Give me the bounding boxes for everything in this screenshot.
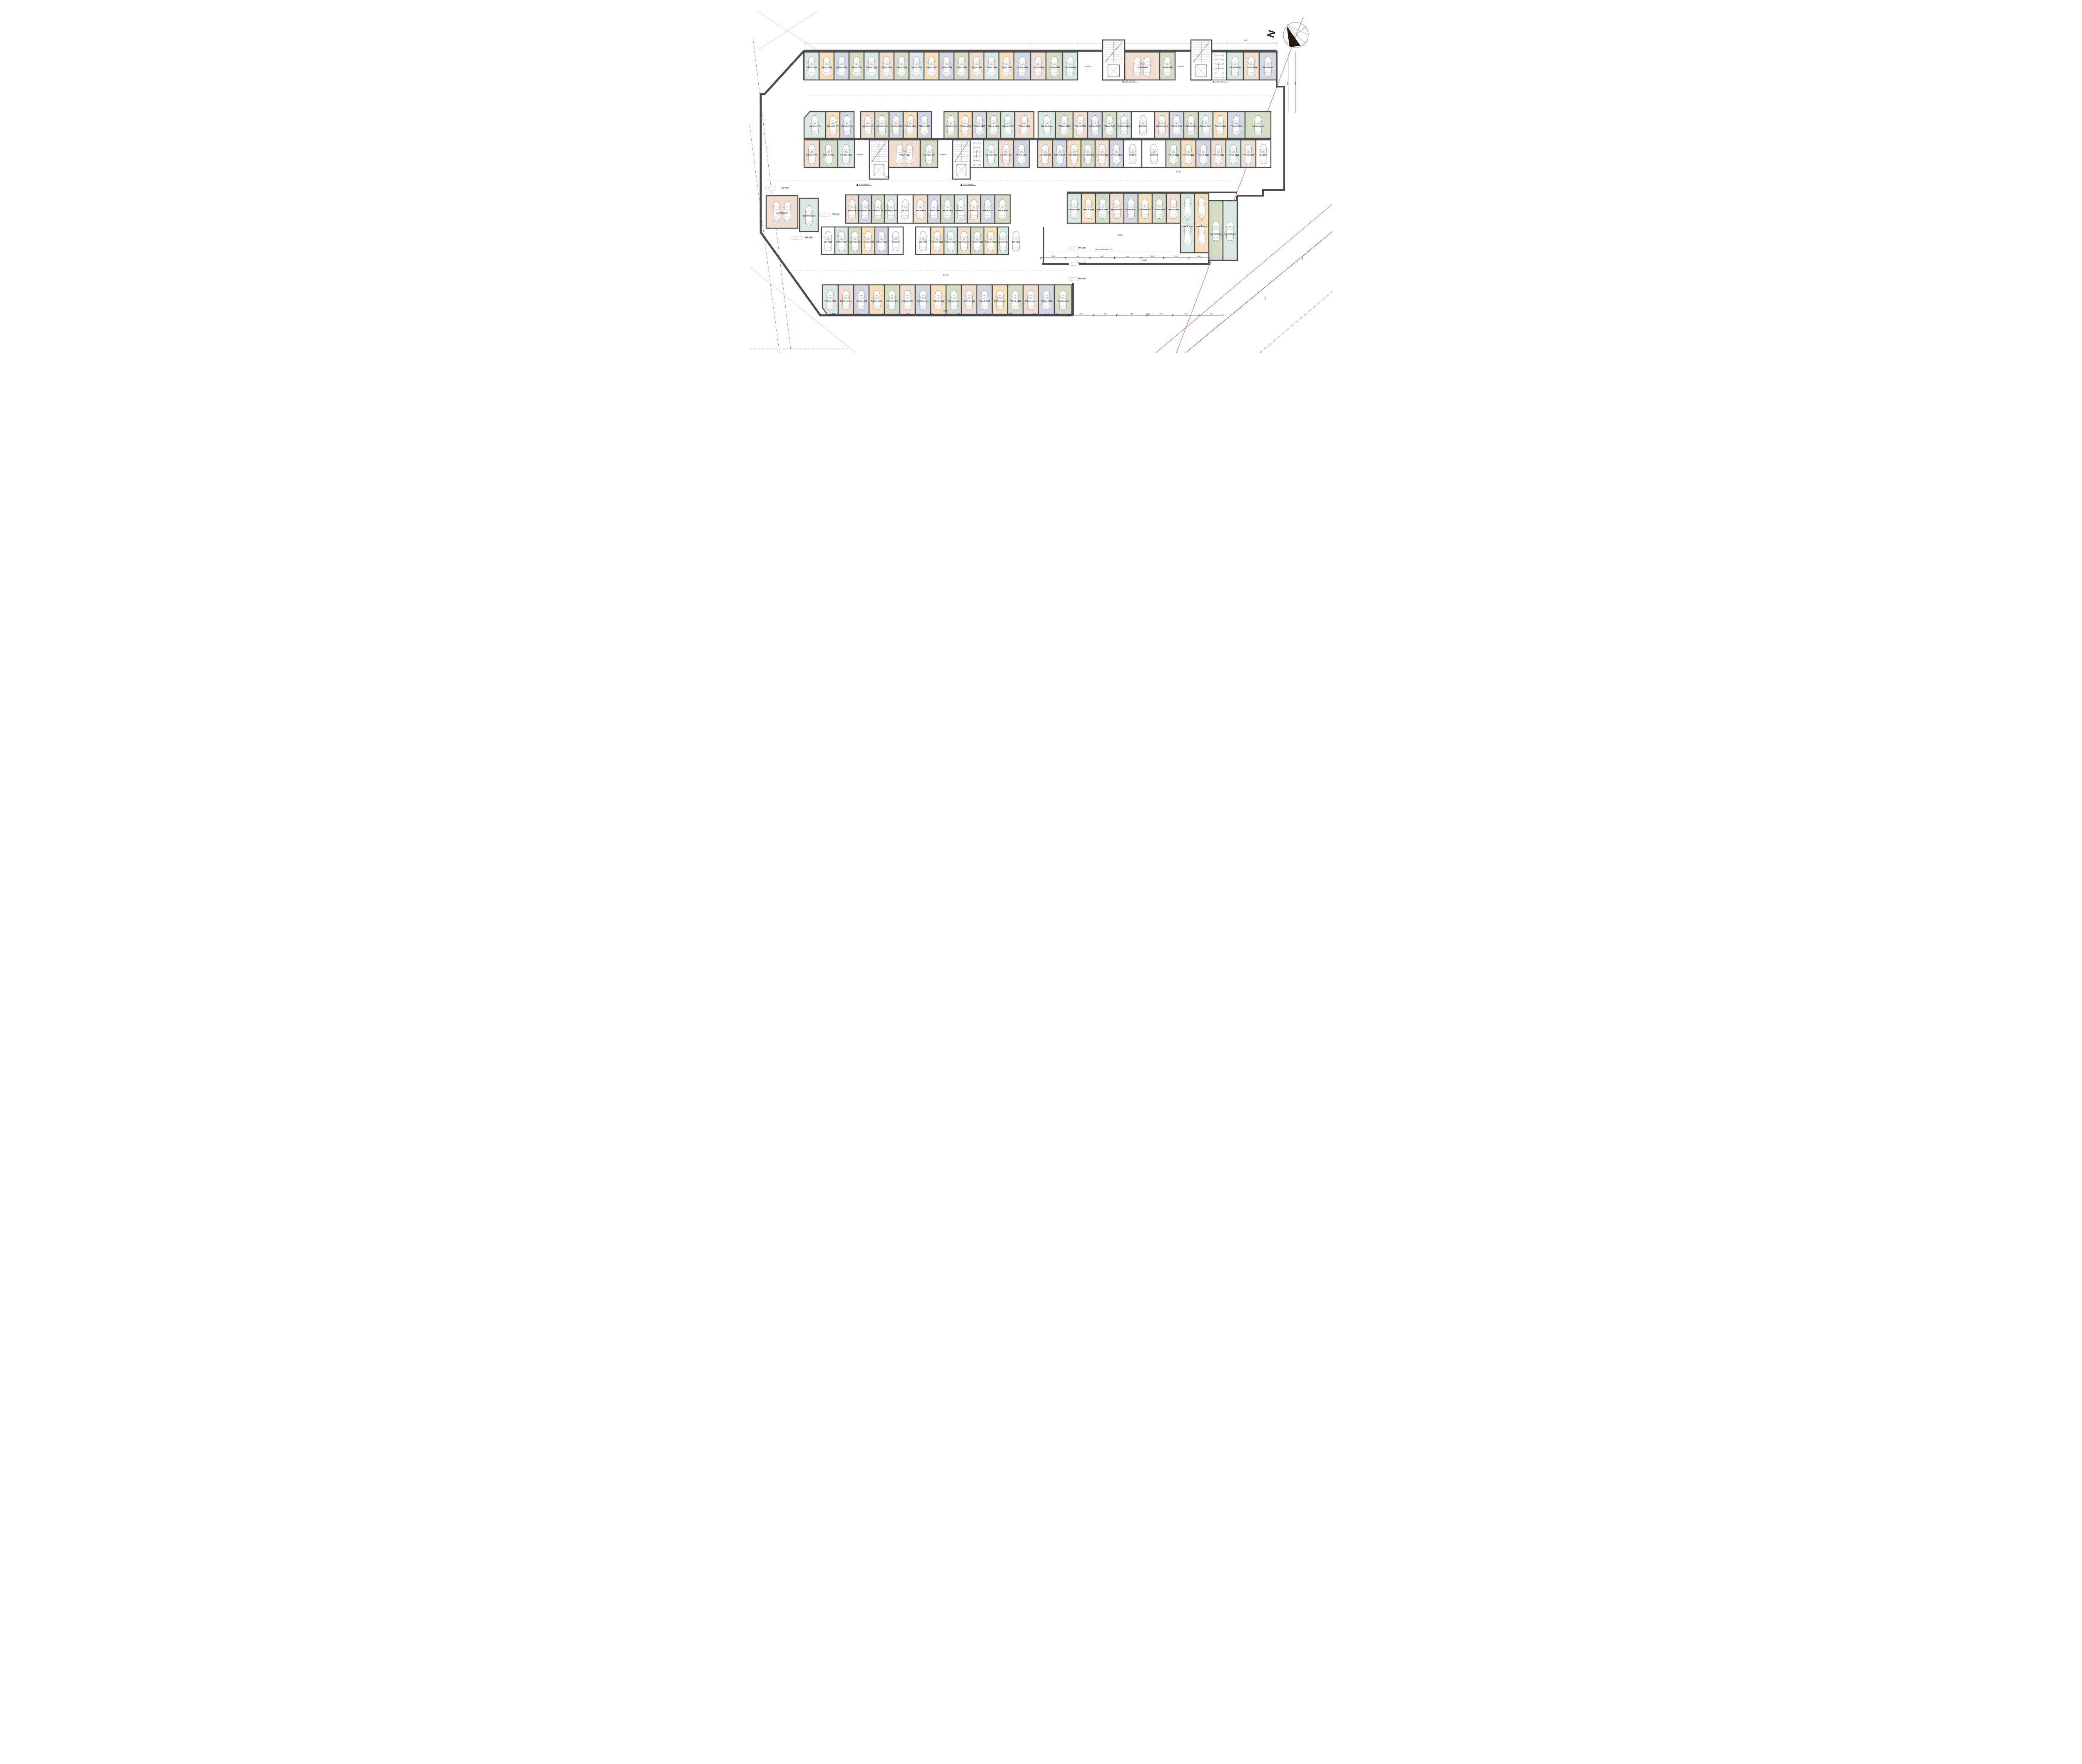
garage-stall: 300ГАРАЖ Б505: [1053, 140, 1067, 167]
svg-text:310: 310: [1172, 205, 1175, 207]
dimension-text-blue: 305: [1033, 313, 1036, 315]
garage-stall: 292ГАРАЖ А505: [846, 195, 859, 223]
svg-text:375: 375: [1142, 122, 1144, 124]
stall-label: ГАРАЖ А603: [849, 241, 861, 243]
ramp-label: рампа за автомобили 12%: [1095, 249, 1113, 250]
garage-stall: 227ГАРАЖ А621: [997, 227, 1009, 254]
stall-label: ГАРАЖ Б421: [1136, 66, 1148, 68]
stall-label: ГАРАЖ А519: [923, 154, 935, 156]
garage-stall: 300ГАРАЖ А720: [969, 52, 984, 80]
svg-text:315: 315: [1087, 205, 1090, 207]
svg-text:300: 300: [1073, 151, 1075, 153]
garage-stall: 300ГАРАЖ А604: [835, 227, 848, 254]
stall-label: ПМ А503: [782, 187, 789, 189]
stall-label: ГАРАЖ Б517: [1243, 154, 1254, 156]
garage-stall: 300ГАРАЖ А719: [954, 52, 969, 80]
bike-parking: велосипеди: [970, 140, 984, 167]
stair-core: [1103, 40, 1125, 80]
svg-text:308: 308: [867, 122, 869, 124]
stall-label: ГАРАЖ А515: [997, 209, 1009, 212]
garage-stall: 300ГАРАЖ А703: [889, 112, 903, 138]
garage-stall: 300ГАРАЖ А722: [999, 52, 1014, 80]
stall-label: ГАРАЖ А602: [862, 241, 874, 243]
svg-text:300: 300: [915, 63, 918, 65]
svg-text:294: 294: [1186, 219, 1189, 220]
stall-label: ГАРАЖ А708: [809, 125, 821, 127]
stall-label: ГАРАЖ А701: [919, 125, 930, 127]
svg-text:762: 762: [903, 151, 906, 153]
svg-text:291: 291: [933, 207, 936, 208]
stall-label: ГАРАЖ А513: [968, 209, 980, 212]
stall-label: ГАРАЖ А720: [971, 66, 982, 68]
garage-stall: 300ГАРАЖ А613: [946, 285, 961, 314]
garage-stall: 300ГАРАЖ А609: [884, 285, 900, 314]
stall-label: ГАРАЖ А724: [1019, 125, 1030, 127]
garage-stall: 300ГАРАЖ А622: [984, 227, 997, 254]
svg-text:310: 310: [1045, 297, 1048, 299]
stall-label: ГАРАЖ А512: [955, 209, 967, 212]
garage-stall: 300ГАРАЖ А728: [958, 112, 972, 138]
garage-stall: ГАРАЖ А504: [799, 198, 818, 232]
stall-label: ПМ А605: [1012, 241, 1020, 243]
garage-stall: 292ГАРАЖ А512: [954, 195, 967, 223]
svg-text:343: 343: [1235, 122, 1238, 124]
stall-label: ГАРАЖ Б419: [1229, 66, 1241, 68]
garage-stall: 315ГАРАЖ Б508: [1081, 193, 1096, 223]
garage-stall: 292ГАРАЖ А506: [859, 195, 872, 223]
garage-stall: 300ГАРАЖ А605: [822, 285, 838, 314]
svg-text:310: 310: [1144, 205, 1146, 207]
dimension-text-blue: 400: [957, 313, 961, 315]
stall-label: ГАРАЖ А710: [821, 66, 832, 68]
stall-label: ГАРАЖ А712: [851, 66, 862, 68]
garage-stall: 300ГАРАЖ А601: [875, 227, 888, 254]
svg-text:300: 300: [909, 122, 911, 124]
car-icon: [772, 201, 781, 221]
svg-text:300: 300: [1187, 151, 1190, 153]
stall-label: ГАРАЖ А509: [915, 209, 926, 212]
stall-label: ГАРАЖ Б401: [1064, 66, 1076, 68]
parking-spot: 300ПМ Б502: [1123, 140, 1142, 167]
dimension-text-blue: 400: [1126, 255, 1130, 257]
stall-label: ПМ А602: [824, 241, 832, 243]
svg-text:310: 310: [1116, 205, 1118, 207]
garage-stall: 300ГАРАЖ А712: [849, 52, 864, 80]
garage-stall: 305ГАРАЖ А517: [999, 140, 1014, 167]
garage-stall: 315ГАРАЖ А501: [838, 140, 854, 167]
dimension-text-blue: 350: [1079, 313, 1083, 315]
dimension-text: 1 321: [884, 176, 889, 178]
garage-stall: 305ГАРАЖ А518: [984, 140, 999, 167]
dimension-text-blue: 340: [1210, 313, 1213, 315]
garage-stall: 292ГАРАЖ Б409: [1117, 112, 1131, 138]
garage-stall: 310ГАРАЖ А619: [1039, 285, 1054, 314]
svg-text:300: 300: [1217, 151, 1220, 153]
garage-stall: 300ГАРАЖ А618: [1023, 285, 1039, 314]
stall-label: ПМ А604: [919, 241, 927, 243]
parking-spot: ПМ А605: [1012, 231, 1020, 251]
svg-text:300: 300: [1006, 122, 1009, 124]
svg-text:752: 752: [1141, 63, 1143, 65]
svg-text:300: 300: [880, 238, 883, 240]
svg-text:300: 300: [999, 297, 1001, 299]
svg-text:300: 300: [1257, 122, 1259, 124]
stall-label: ПМ А607: [1078, 262, 1086, 264]
svg-text:300: 300: [960, 63, 963, 65]
svg-text:300: 300: [953, 297, 955, 299]
stall-label: ГАРАЖ Б414: [1215, 125, 1226, 127]
stall-label: ГАРАЖ Б515: [1210, 233, 1222, 235]
parking-spot: ПМ А608: [1068, 277, 1086, 282]
car-icon: [1198, 197, 1206, 217]
garage-stall: 306ГАРАЖ А511: [941, 195, 954, 223]
floor-plan-canvas: N рампа за автомобили 12% предворје пред…: [750, 0, 1332, 353]
stall-label: ПМ А601: [805, 236, 813, 238]
stall-label: ГАРАЖ А626: [931, 241, 943, 243]
elevation-text: -6.34=+569.26: [859, 184, 869, 185]
garage-stall: 313ГАРАЖ Б420: [1160, 52, 1175, 80]
svg-text:343: 343: [986, 207, 989, 208]
dimension-text-blue: 367: [1101, 255, 1104, 257]
svg-text:306: 306: [1234, 63, 1236, 65]
stall-label: ГАРАЖ Б523: [1182, 226, 1193, 228]
svg-text:365: 365: [1046, 122, 1048, 124]
stall-label: ГАРАЖ А625: [945, 241, 956, 243]
car-icon: [792, 236, 802, 240]
svg-text:305: 305: [1250, 63, 1253, 65]
garage-stall: 300ГАРАЖ Б517: [1241, 140, 1256, 167]
dimension-text: 625: [1244, 39, 1248, 41]
vestibule-label: предворје: [857, 154, 864, 155]
stall-label: ГАРАЖ А607: [856, 300, 867, 302]
stall-label: ГАРАЖ А707: [827, 125, 839, 127]
svg-text:300: 300: [936, 238, 939, 240]
stall-label: ГАРАЖ Б513: [1153, 209, 1165, 211]
svg-text:305: 305: [1190, 122, 1193, 124]
svg-text:292: 292: [1108, 122, 1111, 124]
dimension-text-blue: 570: [1264, 296, 1266, 300]
garage-stall: 300ГАРАЖ А624: [957, 227, 971, 254]
garage-stall: 300ГАРАЖ Б518: [1226, 140, 1241, 167]
stall-label: ГАРАЖ Б415: [1230, 125, 1242, 127]
svg-text:300: 300: [1262, 151, 1265, 153]
garage-stall: 300ГАРАЖ А617: [1008, 285, 1023, 314]
svg-text:292: 292: [960, 207, 962, 208]
dimension-text-blue: 305: [907, 313, 910, 315]
garage-stall: 305ГАРАЖ А513: [967, 195, 981, 223]
svg-text:313: 313: [1166, 63, 1169, 65]
svg-text:300: 300: [1202, 151, 1205, 153]
garage-stall: 650ГАРАЖ А724: [1015, 112, 1034, 138]
parking-spot: 375ПМ Б501: [1142, 140, 1166, 167]
svg-text:300: 300: [895, 122, 897, 124]
dimension-text-blue: 329: [1056, 313, 1059, 315]
stall-label: ГАРАЖ А709: [806, 66, 817, 68]
car-icon: [765, 186, 776, 191]
svg-text:300: 300: [922, 297, 924, 299]
svg-text:300: 300: [1101, 151, 1103, 153]
garage-stall: 300ГАРАЖ Б416: [1245, 112, 1271, 138]
stall-label: ГАРАЖ А510: [929, 209, 940, 212]
garage-stall: 762ГАРАЖ А520: [889, 140, 920, 167]
stall-label: ГАРАЖ А716: [911, 66, 922, 68]
svg-text:305: 305: [990, 151, 992, 153]
parking-spot: ПМ А503: [765, 186, 789, 191]
stall-label: ГАРАЖ А601: [876, 241, 887, 243]
stall-label: ГАРАЖ А725: [1002, 125, 1014, 127]
dimension-text: 555: [1287, 82, 1289, 85]
dimension-text-blue: 367: [930, 313, 934, 315]
stall-label: ГАРАЖ А511: [942, 209, 953, 212]
svg-text:290: 290: [1044, 151, 1046, 153]
garage-stall: 300ГАРАЖ А710: [819, 52, 834, 80]
garage-stall: 308ГАРАЖ А705: [861, 112, 875, 138]
stall-label: ГАРАЖ А502: [823, 154, 834, 156]
svg-text:375: 375: [904, 207, 907, 208]
svg-text:300: 300: [867, 238, 869, 240]
stall-label: ГАРАЖ Б504: [1068, 154, 1080, 156]
garage-stall: 300ГАРАЖ А725: [1001, 112, 1015, 138]
svg-text:291: 291: [1175, 122, 1178, 124]
stall-label: ГАРАЖ А723: [1016, 66, 1028, 68]
stall-label: ГАРАЖ А702: [904, 125, 916, 127]
garage-stall: 300ГАРАЖ А607: [854, 285, 869, 314]
svg-text:310: 310: [1130, 205, 1132, 207]
stall-label: ГАРАЖ А627: [776, 212, 788, 214]
stall-label: ГАРАЖ А713: [866, 66, 877, 68]
garage-stall: 300ГАРАЖ А625: [944, 227, 957, 254]
svg-text:289: 289: [1037, 63, 1040, 65]
elevation-marker: -6.34=+569.26: [856, 184, 872, 186]
stall-label: ПМ А603: [892, 241, 900, 243]
stall-label: ГАРАЖ А706: [841, 125, 853, 127]
svg-text:300: 300: [937, 297, 940, 299]
stall-label: ГАРАЖ А711: [836, 66, 847, 68]
stall-label: ГАРАЖ Б408: [1104, 125, 1116, 127]
stall-label: ГАРАЖ А501: [840, 154, 852, 156]
dimension-text-blue: 340: [857, 313, 861, 315]
stall-label: ГАРАЖ А518: [985, 154, 997, 156]
garage-stall: 300ГАРАЖ А717: [924, 52, 939, 80]
stall-label: ГАРАЖ Б505: [1054, 154, 1066, 156]
stall-label: ГАРАЖ А508: [885, 209, 897, 212]
garage-stall: 300ГАРАЖ А610: [900, 285, 915, 314]
svg-text:300: 300: [894, 238, 897, 240]
dimension-text-blue: 373: [1184, 313, 1188, 315]
stall-label: ГАРАЖ А613: [948, 300, 960, 302]
stair-core: [953, 140, 970, 179]
parking-spot: ПМ А501: [819, 212, 839, 217]
car-icon: [819, 212, 830, 217]
stall-label: ГАРАЖ Б406: [1075, 125, 1086, 127]
stall-label: ГАРАЖ Б411: [1171, 125, 1182, 127]
svg-text:305: 305: [1219, 122, 1222, 124]
garage-stall: 343ГАРАЖ А514: [981, 195, 995, 223]
garage-stall: ГАРАЖ А627: [766, 196, 798, 228]
vestibule-label: предворје: [940, 154, 947, 155]
stall-label: ПМ Б501: [1150, 154, 1158, 156]
garage-stall: 300ГАРАЖ А704: [875, 112, 889, 138]
dimension-text: 1 940: [1176, 171, 1181, 173]
stall-label: ГАРАЖ А620: [1057, 300, 1069, 302]
stall-label: ГАРАЖ А715: [896, 66, 907, 68]
garage-stall: 292ГАРАЖ Б413: [1198, 112, 1213, 138]
svg-text:313: 313: [928, 151, 930, 153]
garage-stall: 340ГАРАЖ А723: [1014, 52, 1031, 80]
dimension-text-blue: 371: [882, 313, 886, 315]
garage-stall: 300ГАРАЖ А726: [986, 112, 1001, 138]
garage-stall: 290ГАРАЖ Б506: [1038, 140, 1053, 167]
svg-text:300: 300: [1087, 151, 1089, 153]
garage-stall: 300ГАРАЖ А623: [971, 227, 984, 254]
garage-stall: 300ГАРАЖ А713: [864, 52, 879, 80]
garage-stall: 300ГАРАЖ А603: [848, 227, 862, 254]
bike-parking: велосипеди: [1212, 52, 1227, 80]
svg-text:300: 300: [990, 63, 993, 65]
stall-label: ГАРАЖ А619: [1041, 300, 1052, 302]
svg-text:294: 294: [1200, 219, 1203, 220]
garage-stall: 300ГАРАЖ А718: [939, 52, 954, 80]
dimension-text: 2 633: [1118, 234, 1123, 236]
stall-label: ГАРАЖ А605: [824, 300, 836, 302]
stall-label: ГАРАЖ Б407: [1089, 125, 1101, 127]
garage-stall: 485ГАРАЖ А708: [804, 112, 826, 138]
svg-text:348: 348: [827, 151, 830, 153]
stall-label: ГАРАЖ Б501: [1111, 154, 1122, 156]
svg-text:300: 300: [984, 297, 986, 299]
svg-text:300: 300: [840, 63, 843, 65]
garage-stall: 305ГАРАЖ Б418: [1243, 52, 1259, 80]
svg-text:300: 300: [1229, 226, 1231, 228]
svg-text:375: 375: [1153, 151, 1155, 153]
garage-stall: 315ГАРАЖ Б401: [1063, 52, 1078, 80]
stall-label: ГАРАЖ Б506: [1039, 154, 1051, 156]
svg-text:485: 485: [814, 122, 816, 124]
svg-text:300: 300: [1005, 63, 1008, 65]
svg-text:300: 300: [978, 122, 981, 124]
svg-text:292: 292: [1205, 122, 1207, 124]
svg-text:292: 292: [877, 207, 879, 208]
floor-plan-svg: N рампа за автомобили 12% предворје пред…: [750, 0, 1332, 353]
stall-label: ГАРАЖ А705: [862, 125, 874, 127]
svg-text:292: 292: [1079, 122, 1082, 124]
svg-text:300: 300: [854, 238, 856, 240]
svg-text:292: 292: [1123, 122, 1126, 124]
stall-label: ГАРАЖ А727: [974, 125, 985, 127]
garage-stall: 305ГАРАЖ Б412: [1184, 112, 1198, 138]
stall-label: ГАРАЖ Б502: [1096, 154, 1108, 156]
svg-text:358: 358: [1001, 207, 1004, 208]
stall-label: ПМ А608: [1078, 278, 1086, 280]
stall-label: ПМ А606: [1078, 247, 1086, 249]
stall-label: ГАРАЖ А726: [988, 125, 999, 127]
stall-label: ГАРАЖ Б412: [1185, 125, 1197, 127]
garage-stall: 300ГАРАЖ Б503: [1081, 140, 1095, 167]
stall-label: ПМ Б401: [1139, 125, 1147, 127]
garage-stall: 315ГАРАЖ А620: [1054, 285, 1072, 314]
garage-stall: 300ГАРАЖ Б502: [1095, 140, 1109, 167]
svg-text:300: 300: [922, 238, 924, 240]
elevation-text: -6.34=+569.25: [1215, 80, 1225, 82]
svg-text:300: 300: [870, 63, 873, 65]
stall-label: ГАРАЖ А718: [941, 66, 952, 68]
stall-label: ГАРАЖ А507: [872, 209, 884, 212]
stall-label: ГАРАЖ Б514: [1168, 209, 1179, 211]
elevation-text: -6.34=+569.26: [963, 184, 973, 185]
svg-text:300: 300: [846, 122, 848, 124]
svg-text:300: 300: [1172, 151, 1175, 153]
svg-text:300: 300: [1131, 151, 1134, 153]
svg-text:292: 292: [864, 207, 867, 208]
stall-label: ГАРАЖ А719: [956, 66, 967, 68]
bikes-label: велосипеди: [976, 150, 977, 158]
stall-label: ГАРАЖ А504: [803, 215, 815, 217]
stall-label: ПМ Б503: [1260, 154, 1268, 156]
stall-label: ГАРАЖ А517: [1000, 154, 1012, 156]
svg-text:315: 315: [1069, 63, 1071, 65]
svg-text:376: 376: [1267, 63, 1269, 65]
svg-text:376: 376: [1020, 151, 1023, 153]
garage-stall: 300ГАРАЖ А707: [826, 112, 840, 138]
stall-label: ГАРАЖ А516: [1016, 154, 1027, 156]
garage-stall: 310ГАРАЖ Б514: [1166, 193, 1180, 223]
stall-label: ГАРАЖ А703: [890, 125, 902, 127]
dimension-text-blue: 379: [1009, 313, 1012, 315]
elevation-marker: -6.34=+569.26: [960, 184, 976, 186]
garage-stall: 292ГАРАЖ А508: [884, 195, 897, 223]
garage-stall: 300ГАРАЖ Б521: [1181, 140, 1196, 167]
parking-spot: 300ПМ А603: [888, 227, 903, 254]
garage-stall: 300ГАРАЖ А706: [840, 112, 854, 138]
garage-stall: 300ГАРАЖ Б519: [1211, 140, 1226, 167]
garage-stall: 294ГАРАЖ Б523: [1180, 193, 1195, 253]
garage-stall: 300ГАРАЖ А714: [879, 52, 894, 80]
stall-label: ГАРАЖ Б417: [1262, 66, 1274, 68]
svg-text:298: 298: [1101, 205, 1104, 207]
stall-label: ГАРАЖ А623: [971, 241, 983, 243]
svg-text:315: 315: [845, 151, 847, 153]
garage-stall: 300ГАРАЖ А626: [931, 227, 944, 254]
stall-label: ГАРАЖ Б509: [1097, 209, 1108, 211]
parking-spot: 375ПМ А502: [897, 195, 913, 223]
garage-stall: 315ГАРАЖ Б507: [1067, 193, 1081, 223]
svg-text:300: 300: [840, 238, 843, 240]
garage-stall: 348ГАРАЖ А502: [819, 140, 838, 167]
garage-stall: 300ГАРАЖ А709: [804, 52, 819, 80]
parking-spot: 300ПМ Б503: [1256, 140, 1271, 167]
svg-text:305: 305: [1005, 151, 1007, 153]
stall-label: ГАРАЖ А704: [876, 125, 888, 127]
car-icon: [783, 201, 792, 221]
svg-text:383: 383: [919, 207, 922, 208]
stall-label: ГАРАЖ Б522: [1168, 154, 1179, 156]
svg-text:292: 292: [1094, 122, 1096, 124]
dimension-text-blue: 365: [1076, 255, 1080, 257]
svg-text:348: 348: [1053, 63, 1056, 65]
stall-label: ГАРАЖ А717: [926, 66, 937, 68]
stair-core: [1191, 40, 1212, 80]
stall-label: ГАРАЖ А606: [840, 300, 852, 302]
garage-stall: 291ГАРАЖ А510: [928, 195, 941, 223]
parking-spot: ПМ А601: [792, 236, 813, 240]
stall-label: ГАРАЖ А609: [887, 300, 898, 302]
svg-text:310: 310: [1158, 205, 1161, 207]
stall-label: ГАРАЖ Б503: [1082, 154, 1094, 156]
garage-stall: 300ГАРАЖ А611: [915, 285, 931, 314]
garage-stall: 300ГАРАЖ Б501: [1109, 140, 1123, 167]
stall-label: ГАРАЖ Б403: [1033, 66, 1044, 68]
svg-text:300: 300: [950, 122, 952, 124]
